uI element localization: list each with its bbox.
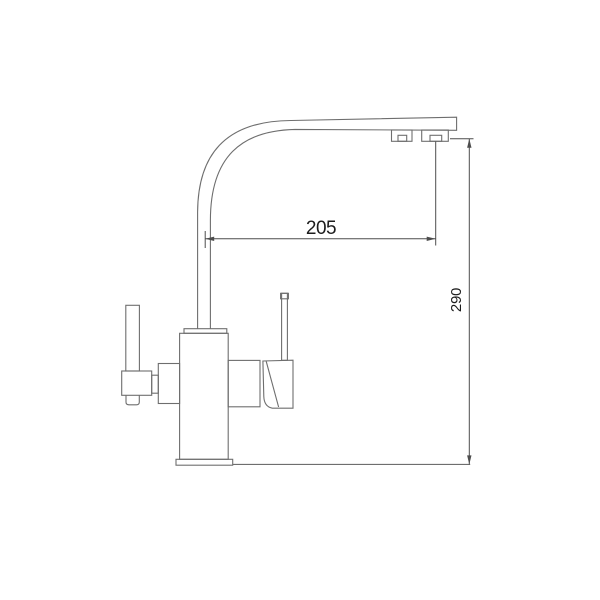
dim-205-arrow-left (205, 237, 214, 241)
faucet-body (180, 333, 229, 459)
left-lever-handle (126, 305, 140, 371)
left-valve-foot (126, 395, 139, 405)
base-flange (176, 459, 233, 465)
technical-drawing-canvas: 205 290 (0, 0, 600, 600)
body-top-cap (184, 329, 227, 334)
right-handle-edge-line (266, 361, 278, 407)
aerator-right-tip (430, 135, 442, 141)
dim-205-arrow-right (427, 237, 436, 241)
faucet-line-art (0, 0, 600, 600)
left-valve-block (122, 371, 152, 395)
faucet-outline-group (122, 117, 471, 465)
right-arm (228, 360, 260, 406)
dimension-label-spout-reach: 205 (296, 219, 346, 239)
dim-290-arrow-up (467, 139, 471, 148)
left-arm (158, 364, 179, 404)
left-connector (152, 375, 159, 393)
dimension-lines-group (205, 139, 473, 465)
aerator-left-tip (398, 135, 407, 141)
dimension-label-spout-height: 290 (449, 279, 465, 321)
dim-290-arrow-down (467, 455, 471, 464)
right-lever-handle (282, 293, 288, 360)
dimension-arrowheads (205, 139, 471, 465)
